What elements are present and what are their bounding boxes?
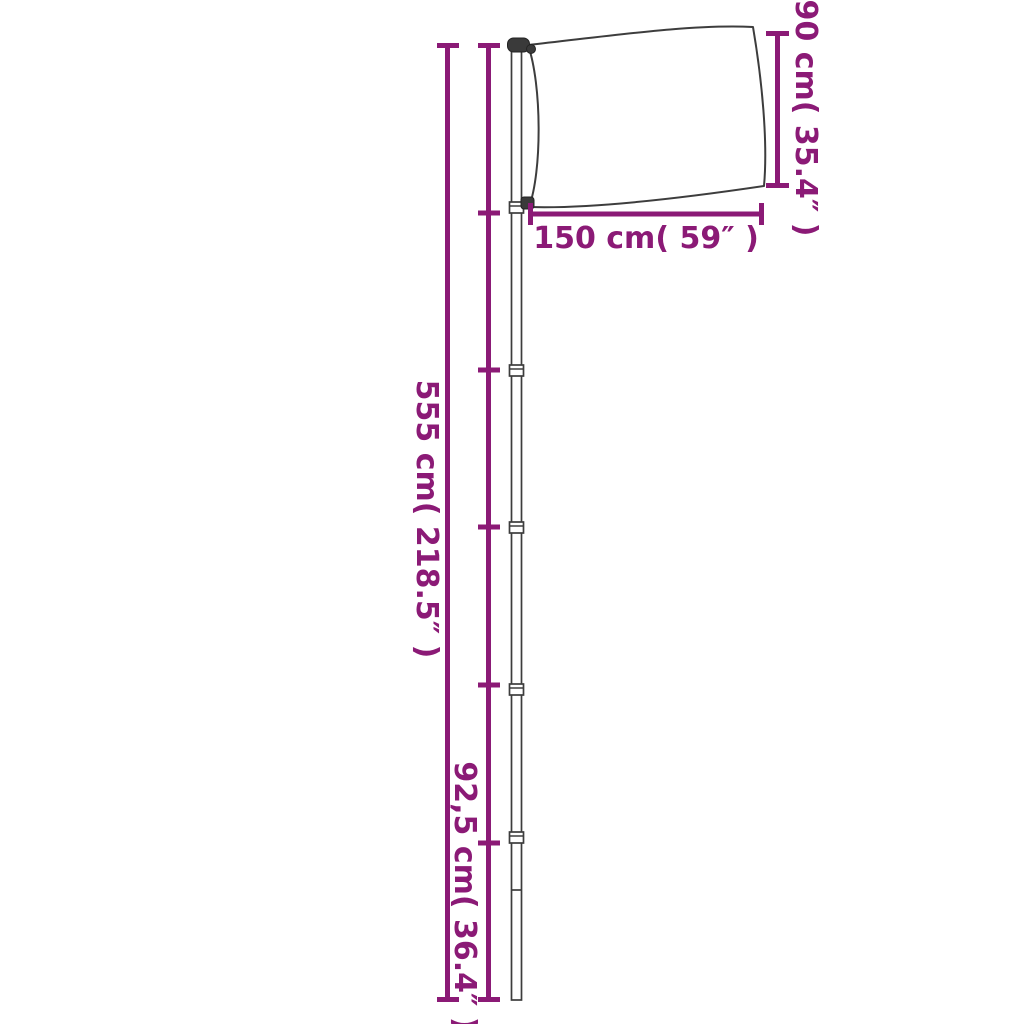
diagram-graphic [0,0,1024,1024]
segment-length-label: 92,5 cm( 36.4″ ) [449,761,479,1024]
pole-height-label: 555 cm( 218.5″ ) [411,380,441,659]
pole-top-cap [508,38,536,54]
flag-width-label: 150 cm( 59″ ) [533,224,759,254]
flag-shape [528,27,765,208]
pole [508,38,536,1000]
flag-height-dimension [766,31,789,188]
flagpole-dimension-diagram: 90 cm( 35.4″ ) 150 cm( 59″ ) 555 cm( 218… [0,0,1024,1024]
flag-height-label: 90 cm( 35.4″ ) [790,0,820,236]
